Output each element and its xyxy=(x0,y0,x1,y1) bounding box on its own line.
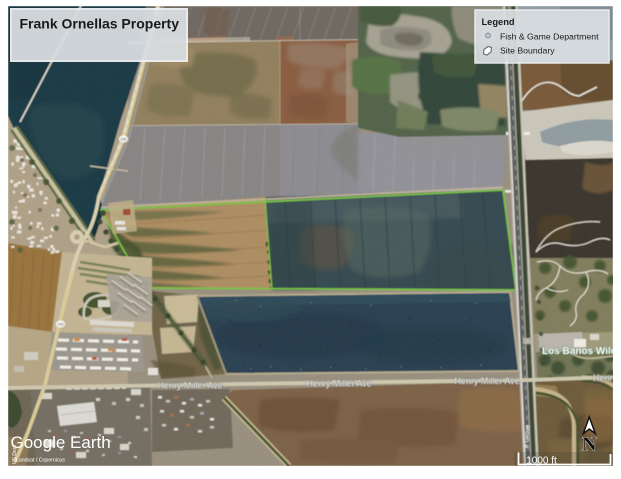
svg-text:Fish & Game Department: Fish & Game Department xyxy=(500,32,599,42)
svg-text:Legend: Legend xyxy=(482,17,515,27)
svg-text:US Dept: US Dept xyxy=(12,444,18,464)
svg-text:Google Earth: Google Earth xyxy=(11,433,111,452)
svg-text:Frank Ornellas Property: Frank Ornellas Property xyxy=(20,16,180,32)
svg-text:Landsat / Copernicus: Landsat / Copernicus xyxy=(16,458,65,464)
svg-text:1000 ft: 1000 ft xyxy=(526,456,557,467)
svg-text:N: N xyxy=(582,434,597,456)
svg-text:Site Boundary: Site Boundary xyxy=(500,46,555,56)
